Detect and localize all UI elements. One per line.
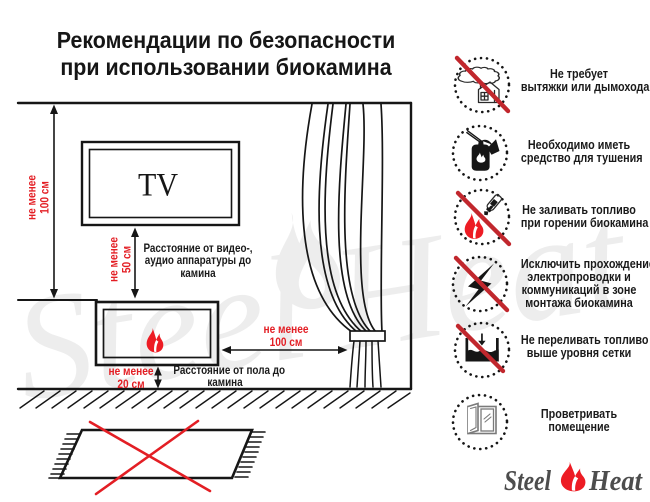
svg-text:Heat: Heat [588,465,643,497]
svg-text:TV: TV [138,168,178,204]
svg-text:Steel: Steel [504,465,552,497]
